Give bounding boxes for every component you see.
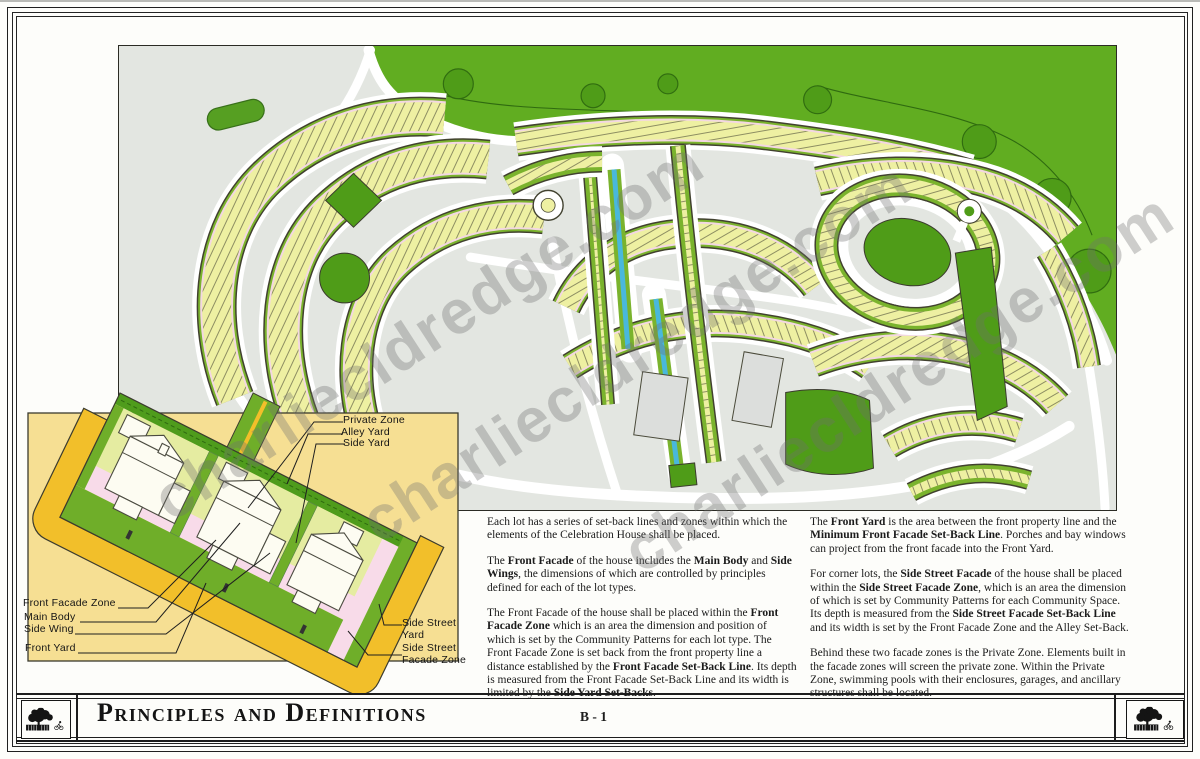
fan-park xyxy=(786,389,874,474)
civic-block xyxy=(634,372,688,441)
celebration-tree-icon xyxy=(25,705,67,735)
label-side-yard: Side Yard xyxy=(343,438,390,450)
footer-separator-left xyxy=(76,694,78,741)
paragraph: The Front Yard is the area between the f… xyxy=(810,516,1132,556)
footer-bottom-rule-2 xyxy=(16,740,1184,742)
document-page: Private Zone Alley Yard Side Yard Front … xyxy=(0,0,1200,759)
paragraph: The Front Facade of the house includes t… xyxy=(487,555,797,595)
label-side-street-yard: Side Street Yard xyxy=(402,618,456,641)
footer-top-rule xyxy=(16,693,1184,695)
round-park xyxy=(320,253,370,303)
page-number: B - 1 xyxy=(580,709,607,725)
footer-separator-right xyxy=(1114,694,1116,741)
label-side-wing: Side Wing xyxy=(24,624,74,636)
definitions-column-left: Each lot has a series of set-back lines … xyxy=(487,516,797,713)
page-title: Principles and Definitions xyxy=(97,698,427,728)
scan-edge-artifact xyxy=(0,0,1200,2)
square-park xyxy=(669,463,697,487)
paragraph: For corner lots, the Side Street Facade … xyxy=(810,568,1132,635)
label-front-facade-zone: Front Facade Zone xyxy=(23,598,116,610)
paragraph: The Front Facade of the house shall be p… xyxy=(487,607,797,701)
label-front-yard: Front Yard xyxy=(25,643,76,655)
label-main-body: Main Body xyxy=(24,612,75,624)
label-private-zone: Private Zone xyxy=(343,415,405,427)
definitions-column-right: The Front Yard is the area between the f… xyxy=(810,516,1132,713)
green-capsule xyxy=(205,97,266,132)
celebration-tree-icon xyxy=(1133,704,1177,735)
footer-left-logo-box xyxy=(21,700,71,739)
footer-right-logo-box xyxy=(1126,700,1184,739)
lot-zone-inset-diagram xyxy=(18,385,465,695)
civic-block-2 xyxy=(732,352,783,428)
label-side-street-facade-zone: Side Street Facade Zone xyxy=(402,643,466,666)
paragraph: Each lot has a series of set-back lines … xyxy=(487,516,797,543)
footer-bottom-rule xyxy=(16,737,1184,738)
